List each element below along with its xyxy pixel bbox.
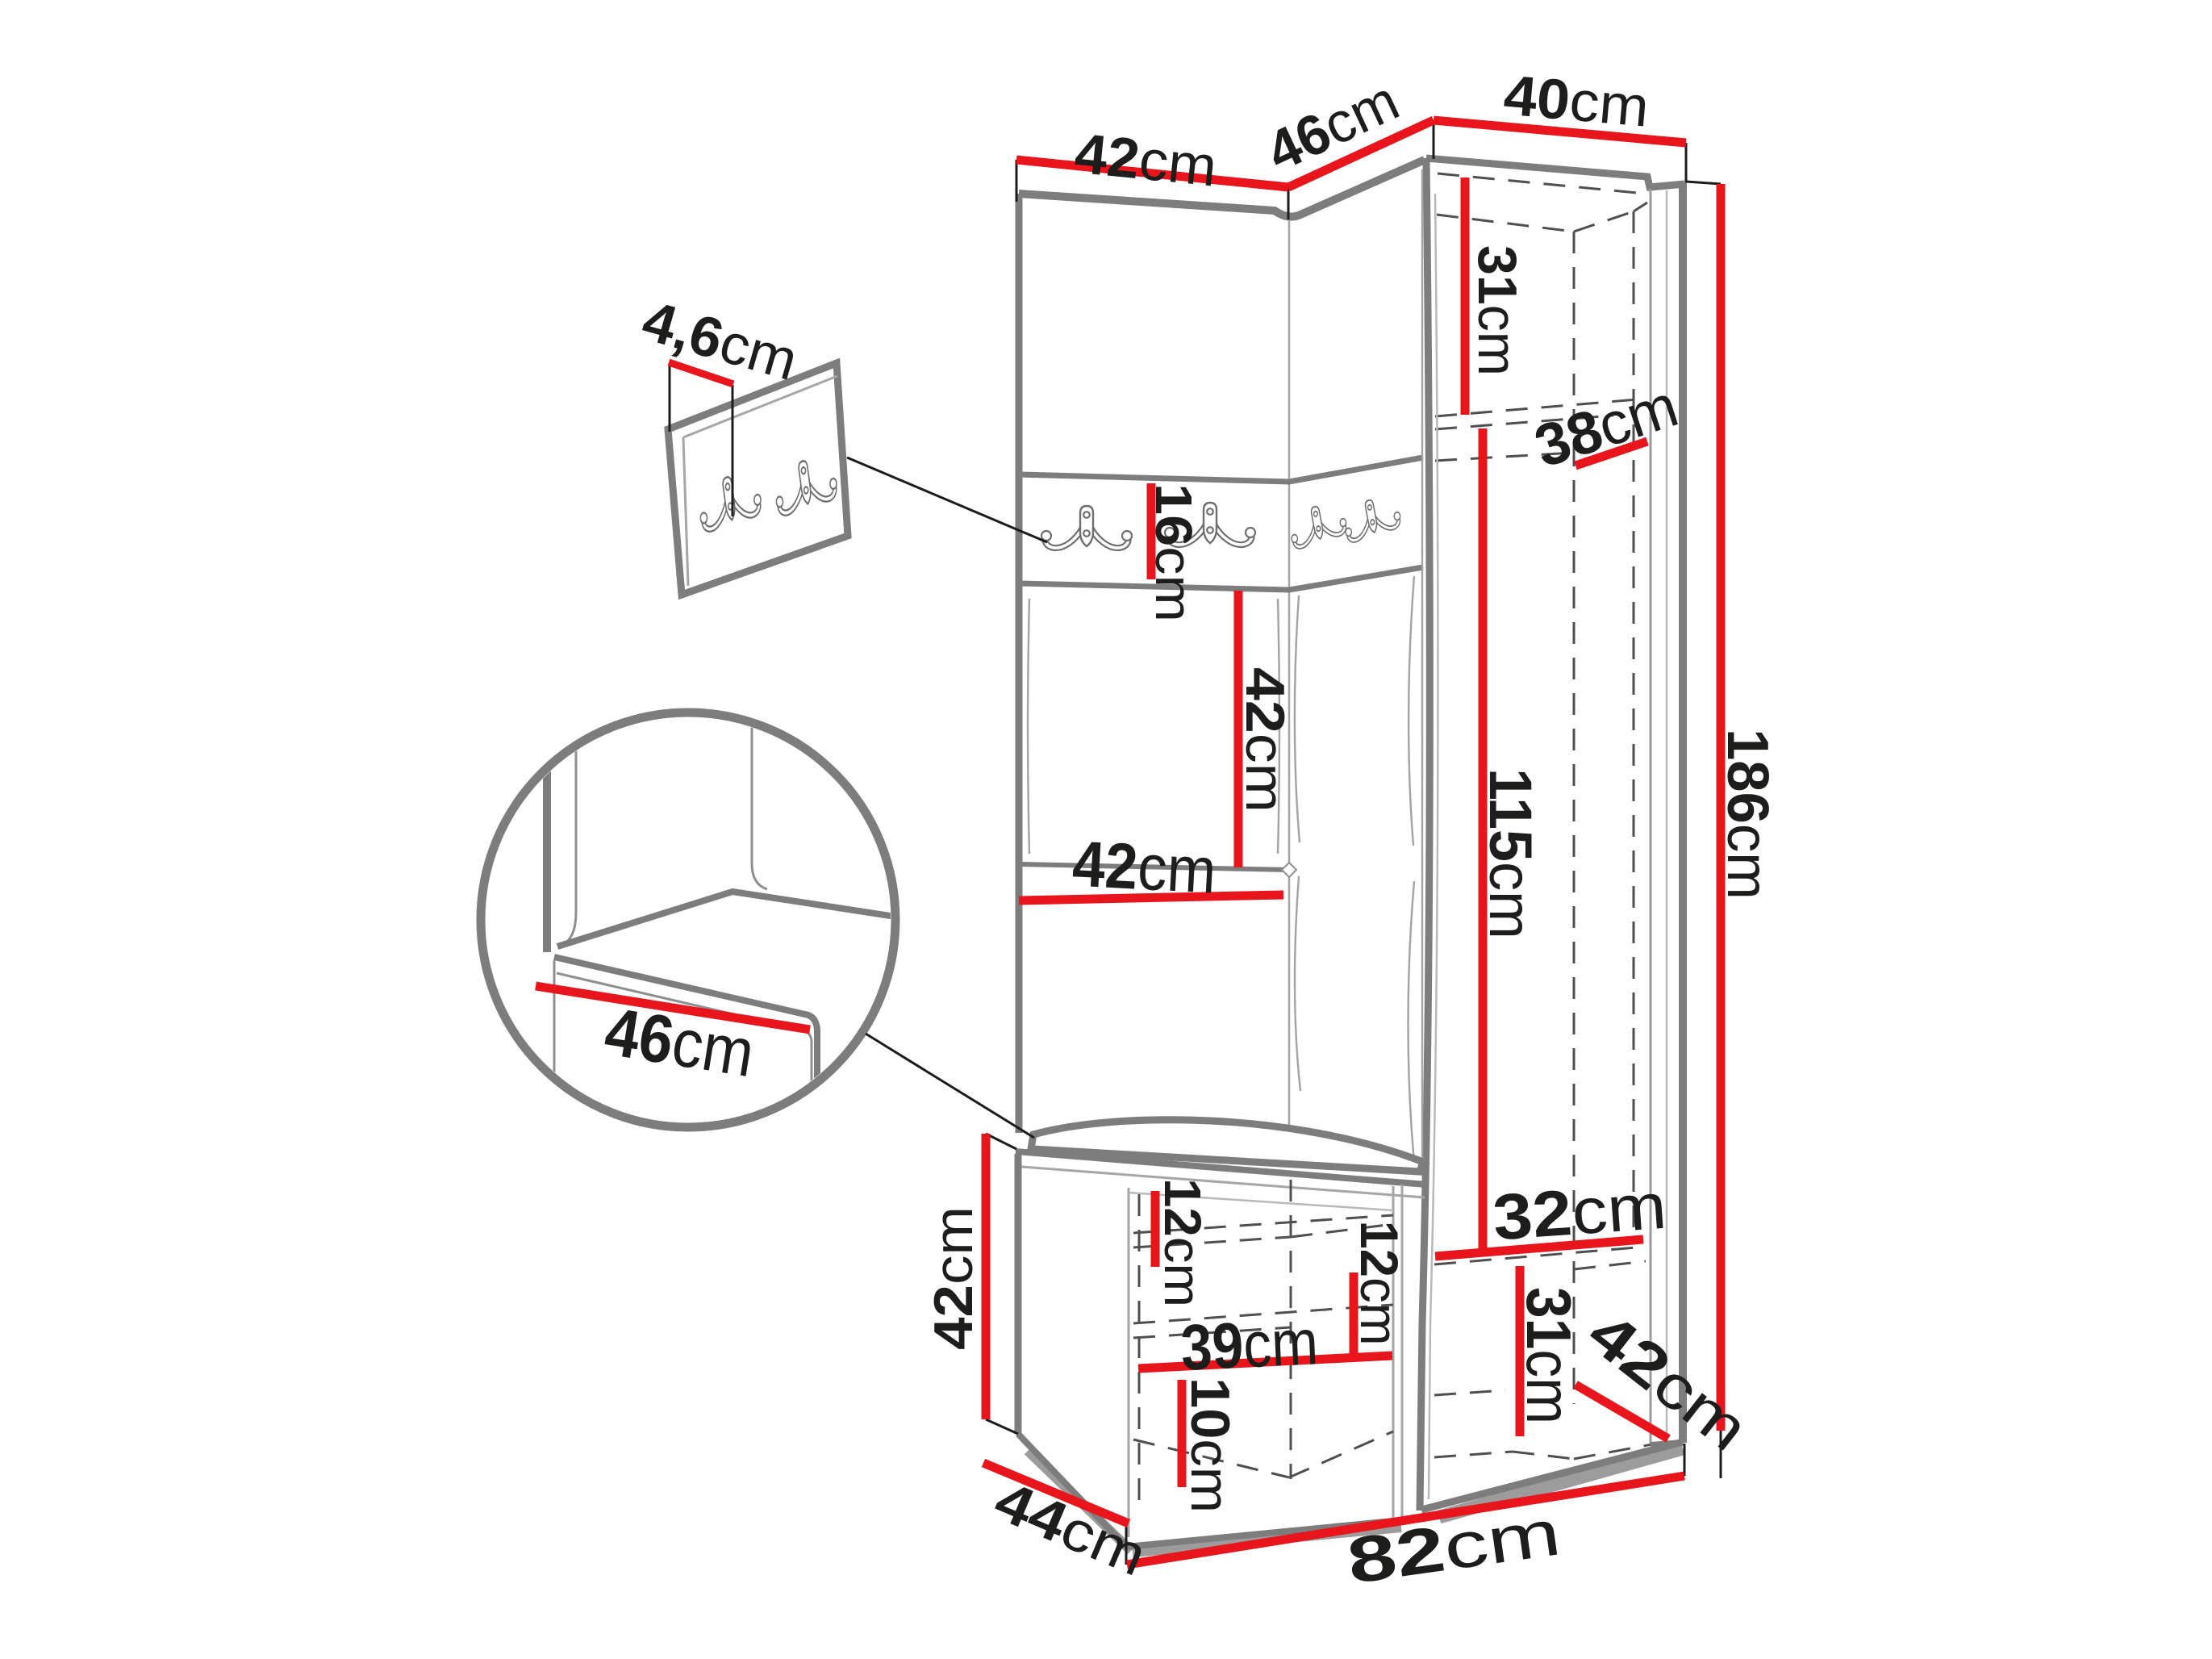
svg-text:32cm: 32cm — [1491, 1170, 1669, 1254]
svg-text:16cm: 16cm — [1145, 483, 1203, 622]
svg-text:115cm: 115cm — [1477, 768, 1544, 939]
svg-text:186cm: 186cm — [1715, 729, 1780, 900]
svg-text:31cm: 31cm — [1513, 1287, 1584, 1424]
svg-text:10cm: 10cm — [1179, 1377, 1241, 1513]
svg-text:12cm: 12cm — [1154, 1178, 1212, 1307]
svg-text:12cm: 12cm — [1350, 1221, 1409, 1346]
svg-text:42cm: 42cm — [1234, 667, 1296, 813]
svg-text:39cm: 39cm — [1179, 1306, 1320, 1383]
svg-text:42cm: 42cm — [923, 1206, 984, 1350]
svg-text:40cm: 40cm — [1501, 63, 1651, 138]
svg-text:42cm: 42cm — [1071, 827, 1217, 906]
svg-text:31cm: 31cm — [1467, 245, 1528, 376]
